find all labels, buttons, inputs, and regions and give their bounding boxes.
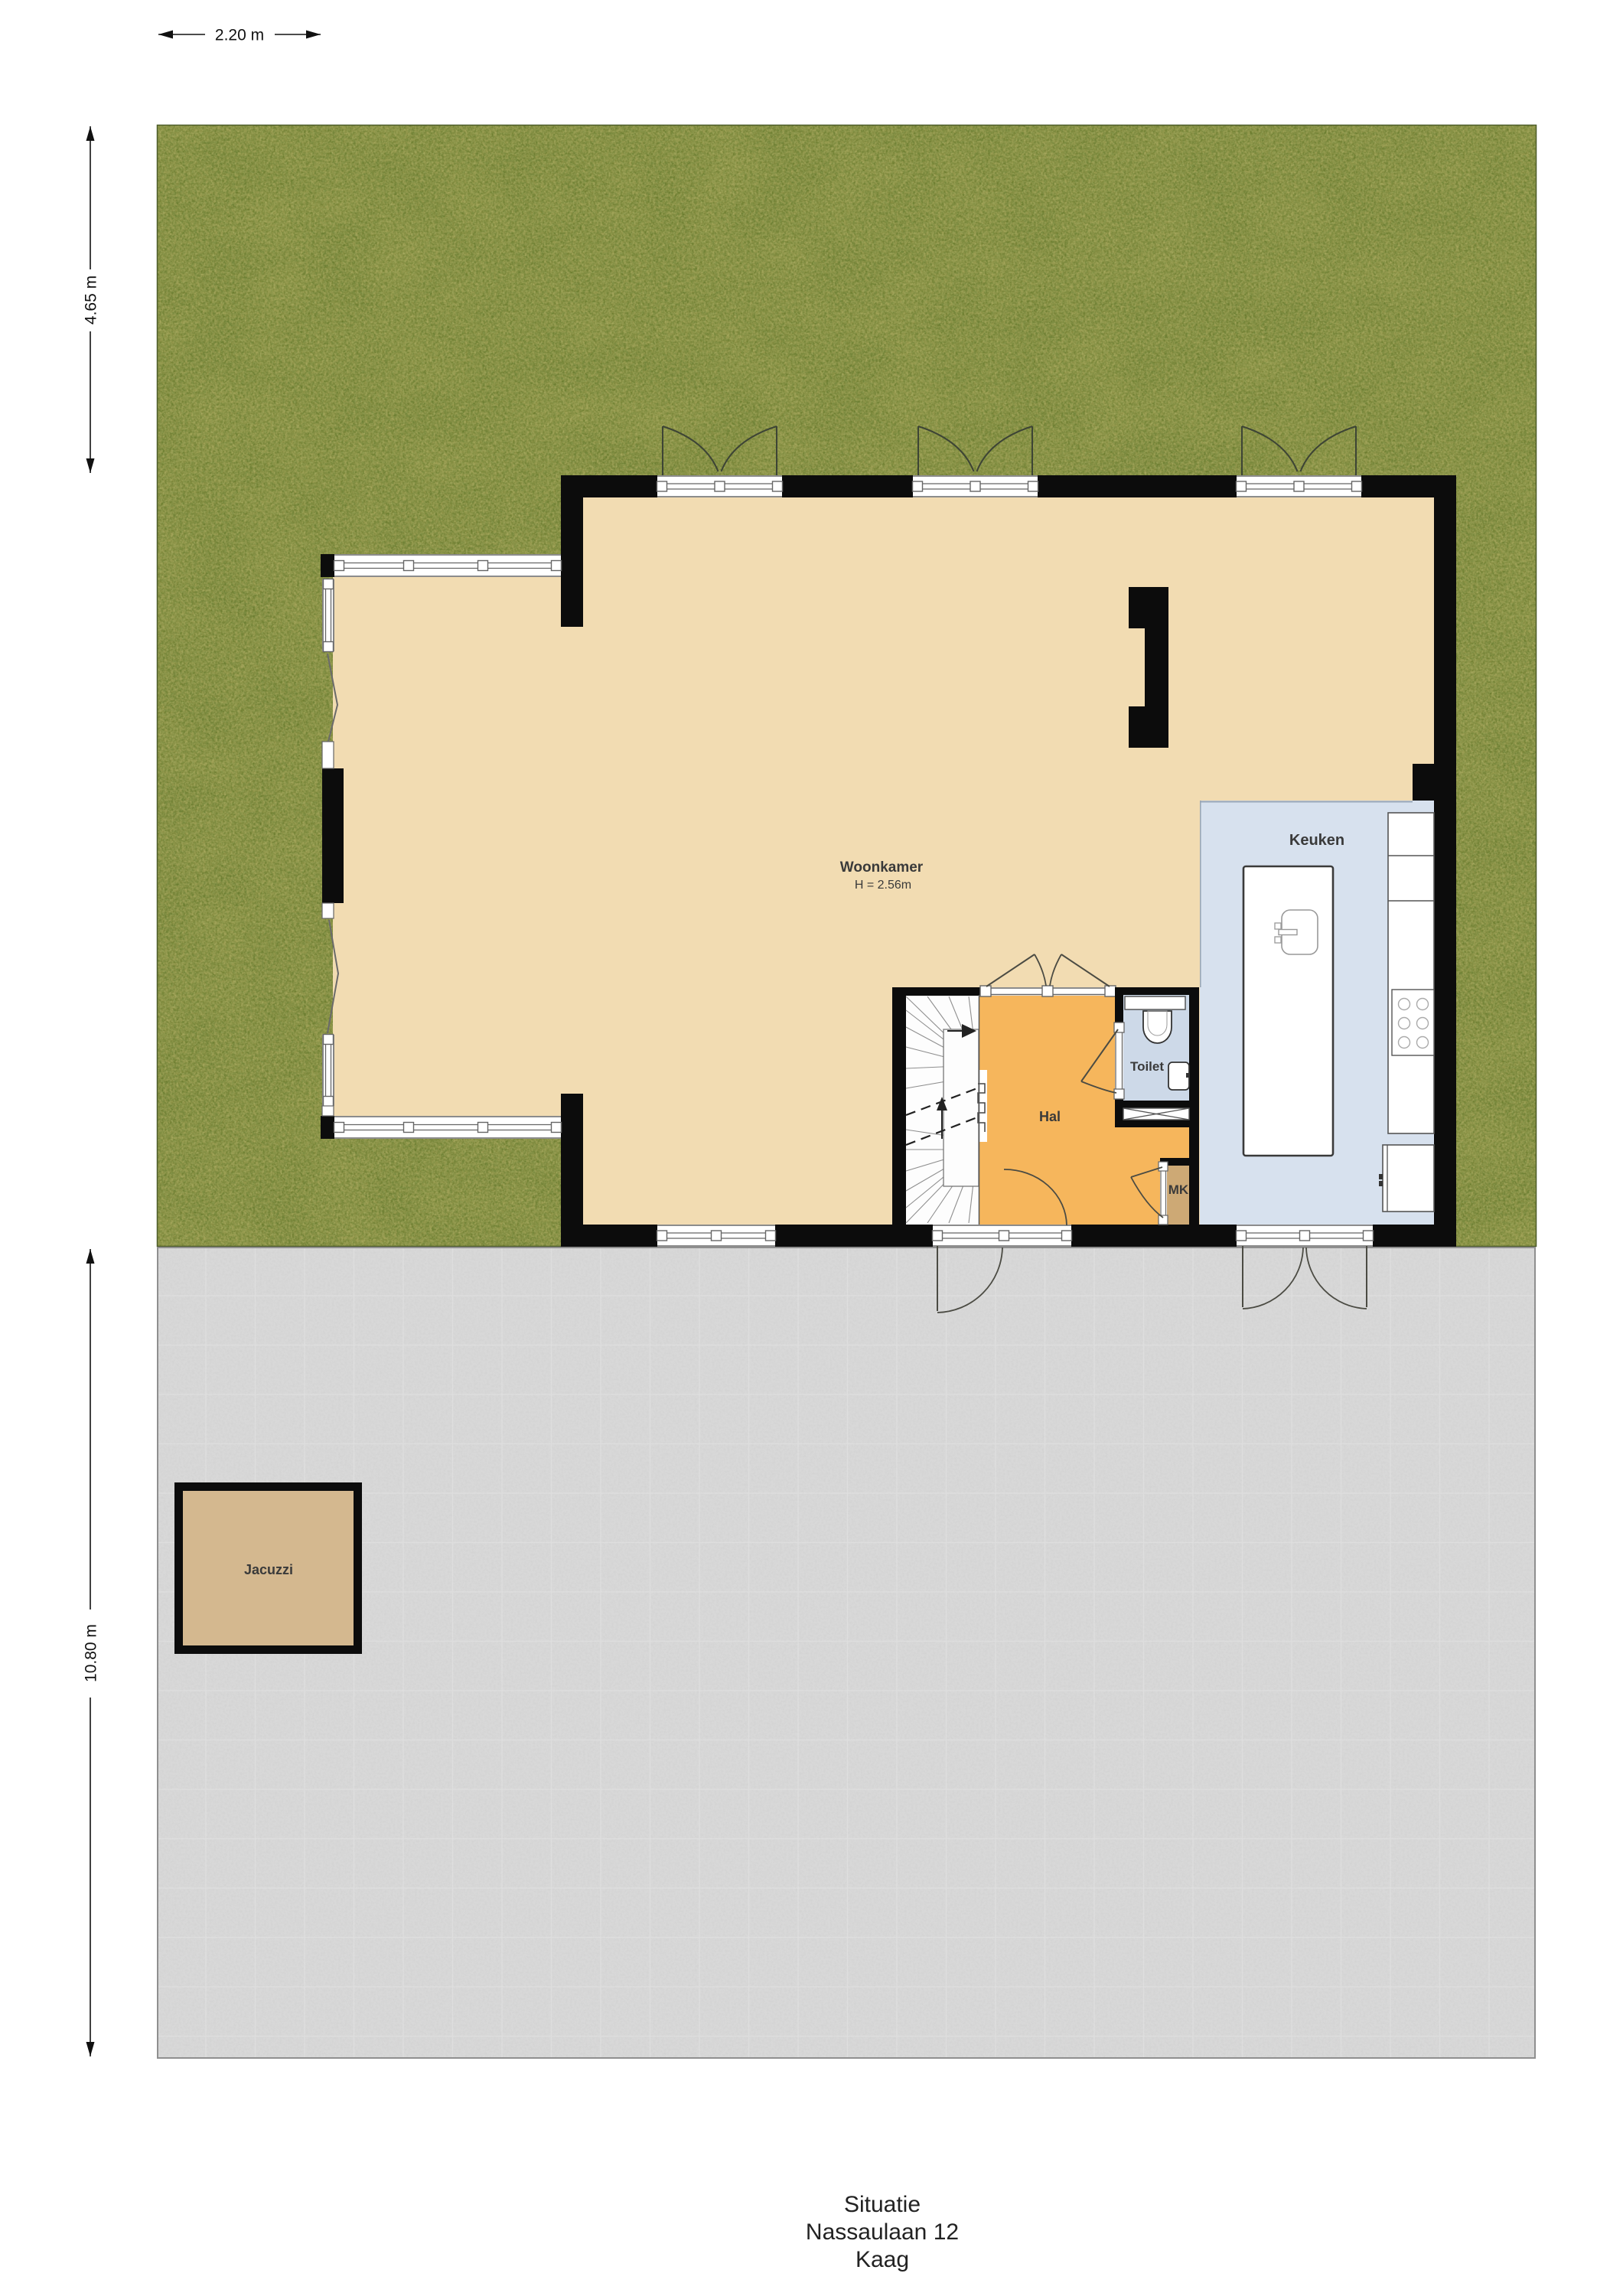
svg-text:4.65 m: 4.65 m	[83, 276, 100, 325]
svg-text:2.20 m: 2.20 m	[215, 27, 264, 44]
svg-text:10.80 m: 10.80 m	[83, 1624, 100, 1682]
svg-text:Kaag: Kaag	[855, 2247, 909, 2272]
svg-text:Woonkamer: Woonkamer	[840, 859, 924, 876]
svg-text:H = 2.56m: H = 2.56m	[855, 879, 911, 892]
svg-text:Keuken: Keuken	[1289, 832, 1344, 849]
svg-text:Hal: Hal	[1039, 1109, 1061, 1124]
svg-text:Jacuzzi: Jacuzzi	[244, 1562, 293, 1577]
svg-text:Situatie: Situatie	[844, 2192, 921, 2217]
svg-text:MK: MK	[1168, 1182, 1189, 1197]
svg-text:Toilet: Toilet	[1130, 1059, 1164, 1074]
svg-text:Nassaulaan 12: Nassaulaan 12	[806, 2219, 959, 2245]
